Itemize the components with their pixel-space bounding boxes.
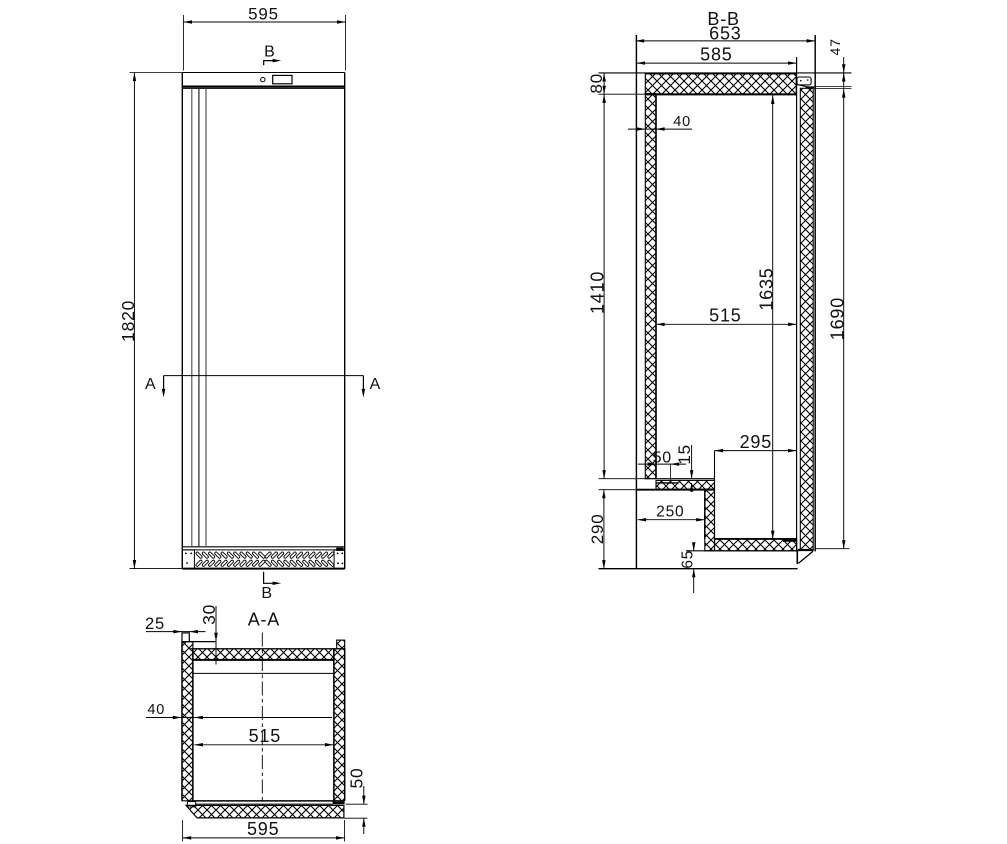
svg-text:65: 65 xyxy=(679,550,696,569)
svg-text:47: 47 xyxy=(827,38,843,55)
svg-text:515: 515 xyxy=(249,726,281,746)
svg-text:50: 50 xyxy=(346,767,366,788)
svg-text:A: A xyxy=(145,376,156,393)
svg-text:595: 595 xyxy=(248,4,279,23)
svg-text:250: 250 xyxy=(656,503,684,520)
svg-text:1410: 1410 xyxy=(588,271,608,314)
svg-text:B: B xyxy=(264,43,275,60)
svg-text:653: 653 xyxy=(709,23,741,43)
svg-text:585: 585 xyxy=(700,45,732,65)
svg-text:515: 515 xyxy=(709,305,741,325)
svg-text:595: 595 xyxy=(247,819,279,839)
svg-text:A-A: A-A xyxy=(248,609,280,629)
svg-text:1690: 1690 xyxy=(828,297,848,340)
svg-text:80: 80 xyxy=(587,73,606,94)
svg-text:1635: 1635 xyxy=(756,267,776,310)
svg-text:A: A xyxy=(370,376,381,393)
svg-text:40: 40 xyxy=(673,114,691,130)
svg-text:40: 40 xyxy=(147,702,165,718)
svg-text:1820: 1820 xyxy=(118,300,138,342)
svg-text:290: 290 xyxy=(588,514,607,545)
svg-text:25: 25 xyxy=(145,615,165,633)
svg-text:295: 295 xyxy=(740,432,772,452)
svg-text:B: B xyxy=(261,585,272,602)
